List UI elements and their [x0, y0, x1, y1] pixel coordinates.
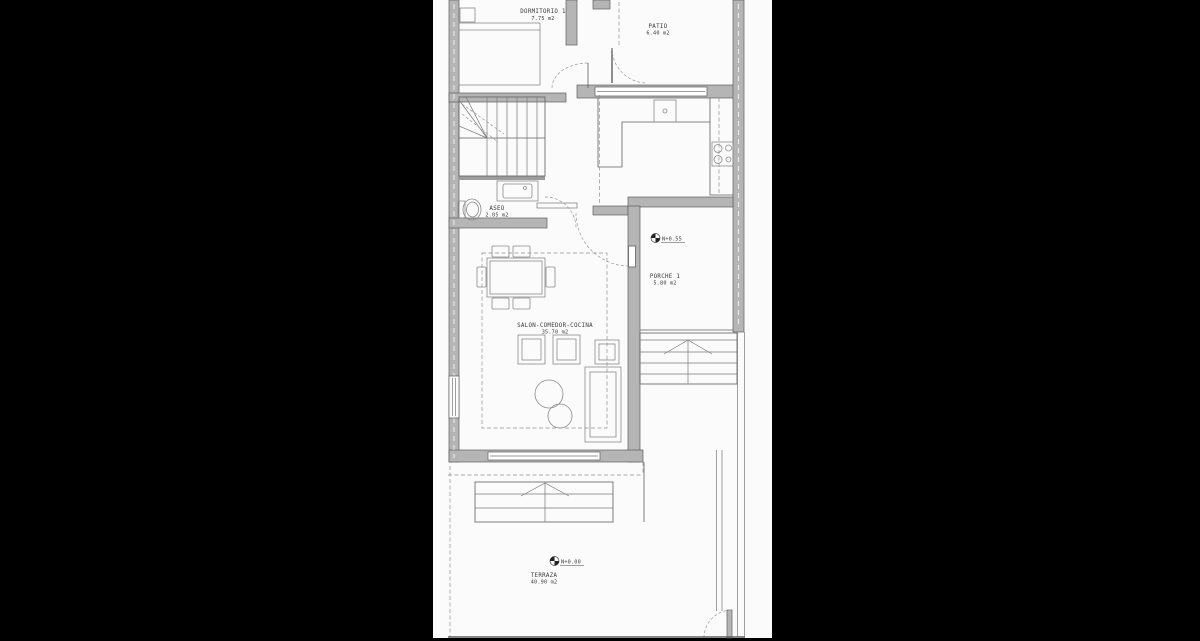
entry-top-wall — [593, 0, 610, 9]
porche1-label: PORCHE 1 — [650, 274, 681, 280]
patio-area: 6.40 m2 — [646, 31, 669, 37]
dormitorio1-area: 7.75 m2 — [531, 16, 554, 22]
screenshot-stage: DORMITORIO 1 7.75 m2 PATIO 6.40 m2 ASEO … — [0, 0, 1200, 641]
terraza-area: 40.90 m2 — [531, 580, 558, 586]
terraza-label: TERRAZA — [531, 573, 558, 579]
dormitorio1-label: DORMITORIO 1 — [520, 9, 566, 15]
benchmark-icon — [651, 234, 660, 243]
aseo-area: 2.05 m2 — [485, 213, 508, 219]
salon-left-window — [449, 376, 459, 418]
floor-plan: DORMITORIO 1 7.75 m2 PATIO 6.40 m2 ASEO … — [0, 0, 1200, 641]
patio-window — [595, 87, 707, 96]
hall-kitchen-wall — [593, 206, 628, 215]
benchmark-icon — [550, 557, 559, 566]
salon-label: SALON-COMEDOR-COCINA — [517, 323, 593, 329]
dormitorio-hall-wall — [566, 0, 577, 45]
kitchen-porche-wall — [628, 197, 733, 207]
salon-sliding-door — [488, 452, 600, 460]
stair-aseo-band — [458, 176, 545, 180]
aseo-bottom-wall — [449, 218, 547, 228]
aseo-label: ASEO — [489, 206, 504, 212]
salon-porche-wall — [628, 206, 640, 462]
porche-level-label: N+0.55 — [662, 237, 682, 243]
porche1-area: 5.80 m2 — [653, 281, 676, 287]
patio-label: PATIO — [649, 24, 668, 30]
salon-area: 35.70 m2 — [542, 330, 569, 336]
terraza-level-label: N+0.00 — [561, 560, 581, 566]
